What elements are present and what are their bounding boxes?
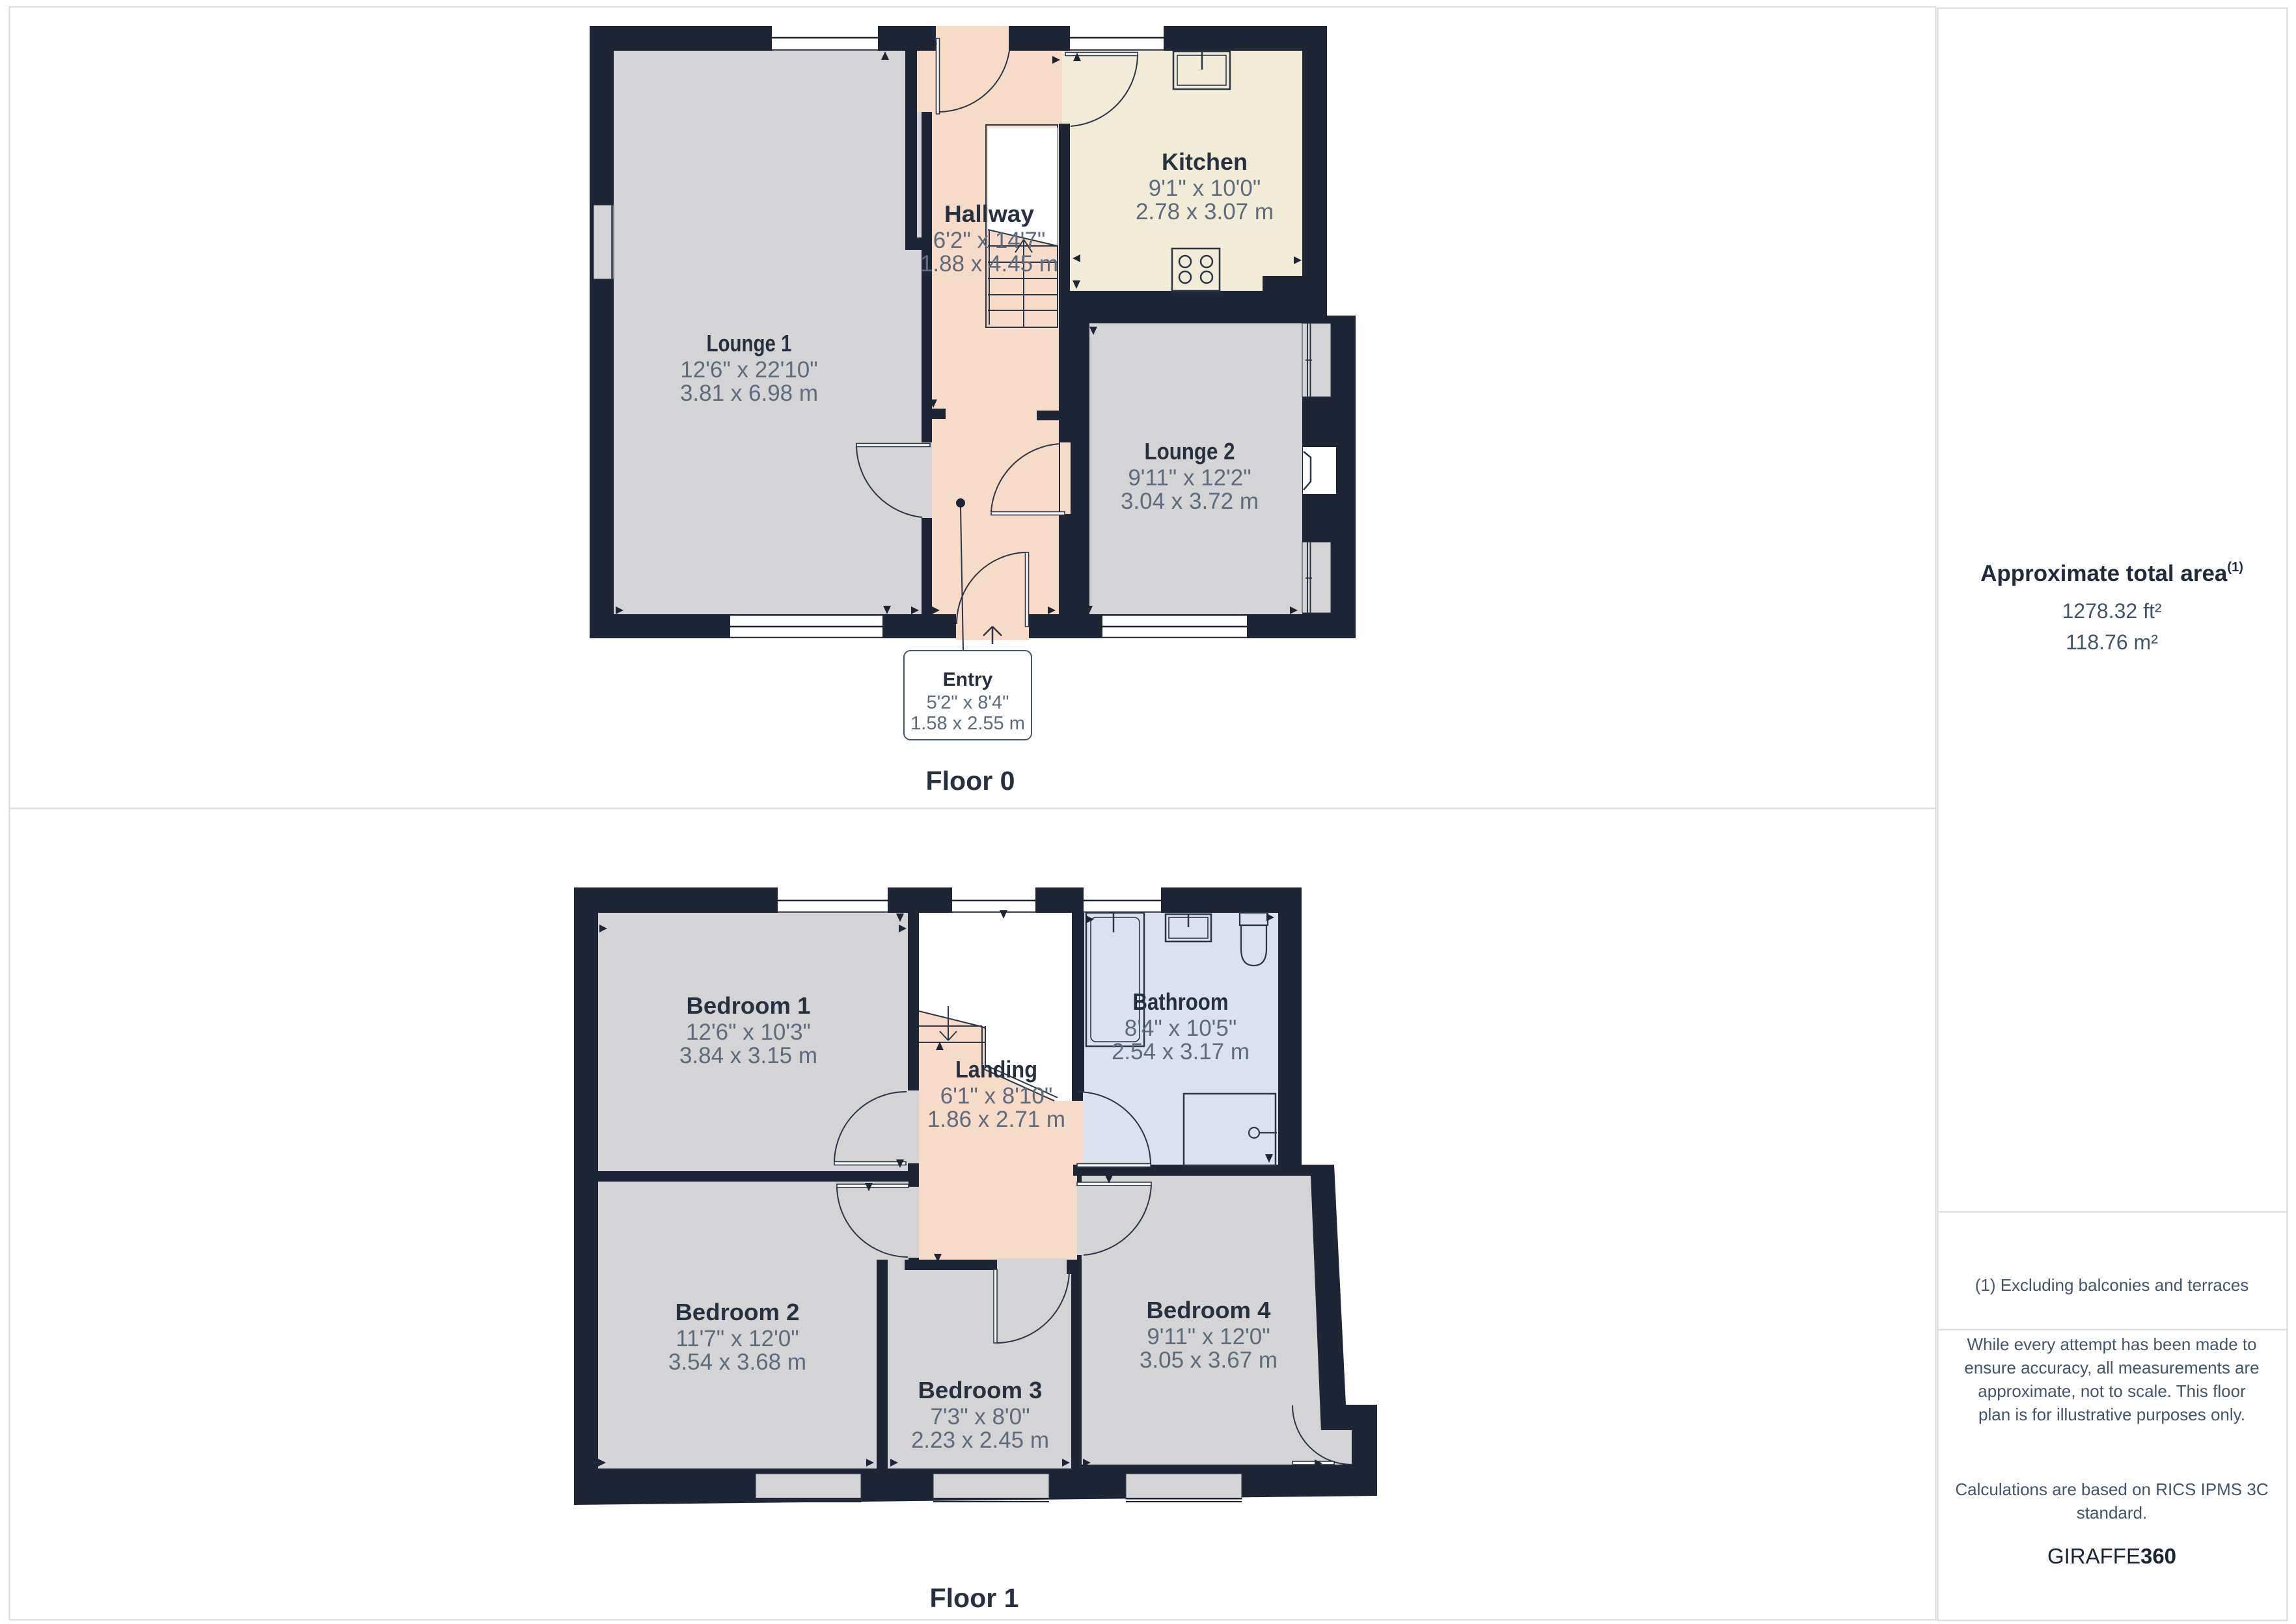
- svg-text:Entry: Entry: [943, 669, 993, 690]
- svg-text:Lounge 2: Lounge 2: [1145, 438, 1235, 465]
- svg-text:approximate, not to scale. Thi: approximate, not to scale. This floor: [1978, 1381, 2246, 1401]
- svg-text:Floor 0: Floor 0: [926, 766, 1015, 796]
- svg-text:(1) Excluding balconies and te: (1) Excluding balconies and terraces: [1975, 1275, 2249, 1295]
- svg-text:3.81 x 6.98 m: 3.81 x 6.98 m: [680, 381, 818, 406]
- svg-text:Hallway: Hallway: [944, 200, 1034, 227]
- svg-text:1.58 x 2.55 m: 1.58 x 2.55 m: [910, 713, 1025, 734]
- svg-text:While every attempt has been m: While every attempt has been made to: [1967, 1334, 2256, 1354]
- svg-text:6'2" x 14'7": 6'2" x 14'7": [933, 228, 1046, 253]
- svg-text:12'6" x 22'10": 12'6" x 22'10": [680, 357, 817, 383]
- svg-text:Calculations are based on RICS: Calculations are based on RICS IPMS 3C: [1955, 1480, 2268, 1499]
- svg-text:GIRAFFE360: GIRAFFE360: [2047, 1544, 2176, 1568]
- svg-text:2.78 x 3.07 m: 2.78 x 3.07 m: [1136, 199, 1274, 224]
- svg-text:8'4" x 10'5": 8'4" x 10'5": [1125, 1016, 1237, 1041]
- svg-text:2.54 x 3.17 m: 2.54 x 3.17 m: [1112, 1039, 1250, 1064]
- svg-text:1.86 x 2.71 m: 1.86 x 2.71 m: [927, 1107, 1065, 1132]
- svg-text:Bedroom 4: Bedroom 4: [1147, 1297, 1271, 1323]
- svg-text:Bedroom 2: Bedroom 2: [676, 1299, 800, 1325]
- svg-text:9'11" x 12'2": 9'11" x 12'2": [1128, 465, 1251, 491]
- svg-text:3.84 x 3.15 m: 3.84 x 3.15 m: [679, 1043, 817, 1068]
- svg-text:standard.: standard.: [2077, 1503, 2147, 1522]
- svg-text:9'1" x 10'0": 9'1" x 10'0": [1149, 176, 1261, 201]
- svg-text:Bedroom 3: Bedroom 3: [918, 1377, 1043, 1403]
- svg-text:Landing: Landing: [955, 1056, 1037, 1083]
- svg-text:3.05 x 3.67 m: 3.05 x 3.67 m: [1140, 1347, 1278, 1373]
- svg-text:118.76 m²: 118.76 m²: [2066, 630, 2158, 654]
- svg-text:12'6" x 10'3": 12'6" x 10'3": [686, 1020, 811, 1045]
- svg-text:Floor 1: Floor 1: [930, 1583, 1019, 1613]
- svg-text:Approximate total area(1): Approximate total area(1): [1980, 560, 2243, 586]
- svg-text:2.23 x 2.45 m: 2.23 x 2.45 m: [911, 1428, 1049, 1453]
- svg-text:Bedroom 1: Bedroom 1: [687, 992, 811, 1019]
- svg-text:1.88 x 4.45 m: 1.88 x 4.45 m: [920, 251, 1058, 277]
- svg-text:plan is for illustrative purpo: plan is for illustrative purposes only.: [1978, 1405, 2245, 1424]
- svg-text:3.04 x 3.72 m: 3.04 x 3.72 m: [1121, 489, 1259, 514]
- svg-text:3.54 x 3.68 m: 3.54 x 3.68 m: [668, 1349, 806, 1375]
- svg-text:ensure accuracy, all measureme: ensure accuracy, all measurements are: [1964, 1358, 2259, 1377]
- svg-text:6'1" x 8'10": 6'1" x 8'10": [940, 1083, 1053, 1109]
- svg-text:5'2" x 8'4": 5'2" x 8'4": [927, 692, 1009, 713]
- svg-text:Kitchen: Kitchen: [1162, 148, 1248, 175]
- svg-text:7'3" x 8'0": 7'3" x 8'0": [930, 1404, 1030, 1429]
- svg-text:Bathroom: Bathroom: [1133, 988, 1229, 1015]
- svg-text:Lounge 1: Lounge 1: [707, 330, 792, 357]
- svg-text:9'11" x 12'0": 9'11" x 12'0": [1147, 1324, 1270, 1349]
- svg-text:11'7" x 12'0": 11'7" x 12'0": [676, 1326, 799, 1351]
- svg-text:1278.32 ft²: 1278.32 ft²: [2062, 599, 2162, 623]
